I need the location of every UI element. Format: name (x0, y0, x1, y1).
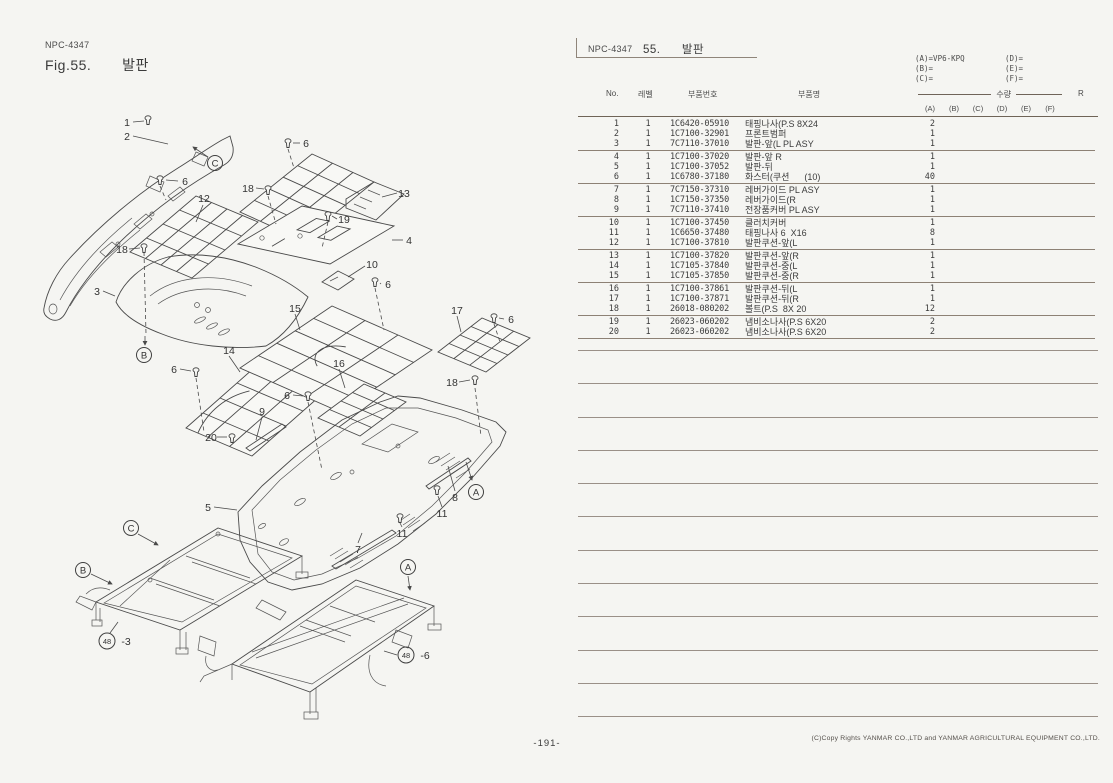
cell-lvl: 1 (639, 195, 657, 205)
table-row: 317C7110-37010발판-앞(L PL ASY1 (575, 139, 1098, 149)
frame-assembly-right (200, 580, 441, 719)
cell-no: 12 (589, 238, 619, 248)
cell-no: 10 (589, 218, 619, 228)
table-row: 1411C7105-37840발판쿠션-중(L1 (575, 261, 1098, 271)
cell-lvl: 1 (639, 185, 657, 195)
qty-subcol-a: (A) (920, 104, 940, 113)
cell-pn: 1C7100-37871 (670, 294, 744, 304)
parts-catalog-page: NPC-4347 Fig.55. 발판 (0, 0, 1113, 783)
cell-lvl: 1 (639, 119, 657, 129)
legend-item-d: (D)= (1005, 54, 1023, 64)
empty-rule-line (578, 683, 1098, 684)
cell-lvl: 1 (639, 327, 657, 337)
table-row: 1111C6650-37480태핑나사 6 X168 (575, 228, 1098, 238)
cell-no: 15 (589, 271, 619, 281)
cell-pn: 7C7150-37310 (670, 185, 744, 195)
cell-lvl: 1 (639, 218, 657, 228)
cell-lvl: 1 (639, 152, 657, 162)
section-number: 55. (643, 44, 661, 56)
cell-no: 5 (589, 162, 619, 172)
cell-qa: 1 (855, 284, 935, 294)
qty-dash-right (1016, 94, 1062, 95)
cell-no: 20 (589, 327, 619, 337)
right-doc-code: NPC-4347 (588, 44, 632, 54)
callout-18: 18 (116, 244, 128, 256)
qty-subcol-c: (C) (968, 104, 988, 113)
empty-rule-line (578, 516, 1098, 517)
empty-rule-line (578, 616, 1098, 617)
cell-qa: 8 (855, 228, 935, 238)
cell-lvl: 1 (639, 228, 657, 238)
table-row: 717C7150-37310레버가이드 PL ASY1 (575, 185, 1098, 195)
callout-12: 12 (198, 193, 210, 205)
table-row: 811C7150-37350레버가이드(R1 (575, 195, 1098, 205)
qty-dash-left (918, 94, 991, 95)
model-legend-col1: (A)=VP6-KPQ (B)= (C)= (915, 54, 965, 84)
ref-48: 48 (402, 651, 410, 660)
empty-rule-line (578, 550, 1098, 551)
cell-no: 13 (589, 251, 619, 261)
cell-no: 14 (589, 261, 619, 271)
callout-6: 6 (171, 364, 177, 376)
cell-pn: 1C7150-37350 (670, 195, 744, 205)
cell-qa: 1 (855, 261, 935, 271)
cell-qa: 1 (855, 185, 935, 195)
qty-subcol-b: (B) (944, 104, 964, 113)
cell-lvl: 1 (639, 317, 657, 327)
table-row: 19126023-060202냄비소나사(P.S 6X202 (575, 317, 1098, 327)
table-row: 18126018-080202볼트(P.S 8X 2012 (575, 304, 1098, 314)
table-row: 917C7110-37410전장품커버 PL ASY1 (575, 205, 1098, 215)
cell-qa: 1 (855, 162, 935, 172)
cell-lvl: 1 (639, 172, 657, 182)
col-header-r: R (1078, 89, 1084, 98)
empty-rule-line (578, 650, 1098, 651)
cell-pn: 26018-080202 (670, 304, 744, 314)
legend-item-e: (E)= (1005, 64, 1023, 74)
header-divider-horizontal (576, 57, 757, 58)
table-row: 20126023-060202냄비소나사(P.S 6X202 (575, 327, 1098, 337)
cell-qa: 2 (855, 317, 935, 327)
cell-lvl: 1 (639, 238, 657, 248)
cell-pn: 1C7100-37861 (670, 284, 744, 294)
cell-no: 3 (589, 139, 619, 149)
callout-14: 14 (223, 345, 235, 357)
exploded-parts-diagram: 1 2 6 18 6 12 19 13 4 10 6 18 3 15 17 6 … (0, 0, 565, 783)
empty-rule-line (578, 583, 1098, 584)
table-row: 1711C7100-37871발판쿠션-뒤(R1 (575, 294, 1098, 304)
footboard-cushion-plate-12 (130, 196, 258, 278)
parts-table: 111C6420-05910태핑나사(P.S 8X242211C7100-329… (575, 119, 1098, 340)
cell-pn: 1C7100-32901 (670, 129, 744, 139)
cell-pn: 1C6780-37180 (670, 172, 744, 182)
callout-7: 7 (355, 544, 361, 556)
empty-rule-line (578, 716, 1098, 717)
view-ref-A: A (405, 563, 412, 574)
cell-pn: 1C7105-37840 (670, 261, 744, 271)
col-header-level: 레벨 (638, 89, 653, 100)
cell-lvl: 1 (639, 294, 657, 304)
cell-pn: 26023-060202 (670, 327, 744, 337)
cell-no: 8 (589, 195, 619, 205)
cell-qa: 12 (855, 304, 935, 314)
qty-label: 수량 (996, 89, 1011, 100)
cell-qa: 1 (855, 129, 935, 139)
cell-qa: 1 (855, 238, 935, 248)
table-header-rule (578, 116, 1098, 117)
page-number: -191- (497, 738, 597, 749)
callout-3: 3 (94, 286, 100, 298)
callout-6: 6 (385, 279, 391, 291)
cell-no: 16 (589, 284, 619, 294)
cell-qa: 1 (855, 195, 935, 205)
callout-8: 8 (452, 492, 458, 504)
footboard-cushion-plate-17 (438, 318, 530, 372)
table-row: 611C6780-37180화스터(쿠션 (10)40 (575, 172, 1098, 182)
cell-pn: 1C7100-37052 (670, 162, 744, 172)
callout-13: 13 (398, 188, 410, 200)
cell-no: 1 (589, 119, 619, 129)
callout-20: 20 (205, 432, 217, 444)
cell-qa: 1 (855, 205, 935, 215)
callout-19: 19 (338, 214, 350, 226)
cell-no: 17 (589, 294, 619, 304)
table-row: 1511C7105-37850발판쿠션-중(R1 (575, 271, 1098, 281)
col-header-qty: 수량 (918, 89, 1062, 100)
cell-no: 19 (589, 317, 619, 327)
empty-rule-line (578, 417, 1098, 418)
callout-11: 11 (437, 508, 448, 520)
cell-lvl: 1 (639, 162, 657, 172)
cell-pn: 1C6420-05910 (670, 119, 744, 129)
ref-48-suffix-3: -3 (121, 636, 130, 648)
view-ref-B: B (80, 566, 86, 577)
cell-qa: 1 (855, 251, 935, 261)
cell-lvl: 1 (639, 261, 657, 271)
cell-no: 2 (589, 129, 619, 139)
cell-pn: 1C7100-37820 (670, 251, 744, 261)
empty-rule-line (578, 350, 1098, 351)
view-ref-C: C (128, 524, 135, 535)
copyright-notice: (C)Copy Rights YANMAR CO.,LTD and YANMAR… (700, 735, 1100, 742)
model-legend-col2: (D)= (E)= (F)= (1005, 54, 1023, 84)
cell-qa: 1 (855, 139, 935, 149)
cell-lvl: 1 (639, 129, 657, 139)
table-row: 1611C7100-37861발판쿠션-뒤(L1 (575, 284, 1098, 294)
cell-no: 11 (589, 228, 619, 238)
ref-48-suffix-6: -6 (420, 650, 429, 662)
callout-15: 15 (289, 303, 301, 315)
table-row: 511C7100-37052발판-뒤1 (575, 162, 1098, 172)
cell-pn: 1C6650-37480 (670, 228, 744, 238)
cell-pn: 7C7110-37410 (670, 205, 744, 215)
small-plate-10 (322, 271, 354, 290)
empty-rule-line (578, 383, 1098, 384)
header-divider-vertical (576, 38, 577, 57)
legend-item-b: (B)= (915, 64, 965, 74)
cell-qa: 2 (855, 327, 935, 337)
empty-ruled-area (578, 350, 1098, 750)
qty-subcol-d: (D) (992, 104, 1012, 113)
ref-48: 48 (103, 637, 111, 646)
col-header-part-name: 부품명 (798, 89, 820, 100)
callout-1: 1 (124, 117, 130, 129)
cell-qa: 1 (855, 271, 935, 281)
legend-item-f: (F)= (1005, 74, 1023, 84)
callout-18: 18 (242, 183, 254, 195)
cell-lvl: 1 (639, 271, 657, 281)
callout-6: 6 (284, 390, 290, 402)
col-header-no: No. (606, 89, 618, 98)
cell-lvl: 1 (639, 304, 657, 314)
qty-subcol-f: (F) (1040, 104, 1060, 113)
qty-subcol-e: (E) (1016, 104, 1036, 113)
cell-pn: 1C7100-37020 (670, 152, 744, 162)
cell-pn: 7C7110-37010 (670, 139, 744, 149)
callout-2: 2 (124, 131, 130, 143)
cell-pn: 1C7100-37450 (670, 218, 744, 228)
legend-item-a: (A)=VP6-KPQ (915, 54, 965, 64)
callout-4: 4 (406, 235, 412, 247)
section-title: 55. 발판 (643, 41, 704, 57)
view-ref-A: A (473, 488, 480, 499)
cell-no: 7 (589, 185, 619, 195)
col-header-part-no: 부품번호 (688, 89, 717, 100)
group-separator (575, 337, 1098, 340)
callout-10: 10 (366, 259, 378, 271)
table-row: 1211C7100-37810발판쿠션-앞(L1 (575, 238, 1098, 248)
callout-16: 16 (333, 358, 345, 370)
callout-6: 6 (182, 176, 188, 188)
cell-pn: 1C7100-37810 (670, 238, 744, 248)
view-ref-B: B (141, 351, 147, 362)
view-ref-C: C (212, 159, 219, 170)
cell-qa: 2 (855, 119, 935, 129)
table-row: 1311C7100-37820발판쿠션-앞(R1 (575, 251, 1098, 261)
table-row: 211C7100-32901프론트범퍼1 (575, 129, 1098, 139)
callout-6: 6 (508, 314, 514, 326)
cell-qa: 1 (855, 152, 935, 162)
cell-lvl: 1 (639, 205, 657, 215)
empty-rule-line (578, 450, 1098, 451)
callout-6: 6 (303, 138, 309, 150)
cell-qa: 40 (855, 172, 935, 182)
cell-qa: 1 (855, 218, 935, 228)
cell-no: 18 (589, 304, 619, 314)
table-row: 411C7100-37020발판-앞 R1 (575, 152, 1098, 162)
cell-lvl: 1 (639, 284, 657, 294)
cell-no: 4 (589, 152, 619, 162)
callout-17: 17 (451, 305, 463, 317)
section-name: 발판 (682, 44, 704, 56)
table-row: 1011C7100-37450클러치커버1 (575, 218, 1098, 228)
callout-11: 11 (397, 528, 408, 540)
cell-no: 6 (589, 172, 619, 182)
callout-5: 5 (205, 502, 211, 514)
table-row: 111C6420-05910태핑나사(P.S 8X242 (575, 119, 1098, 129)
cell-no: 9 (589, 205, 619, 215)
cell-pn: 26023-060202 (670, 317, 744, 327)
empty-rule-line (578, 483, 1098, 484)
frame-assembly-left (76, 528, 308, 670)
callout-18: 18 (446, 377, 458, 389)
cell-lvl: 1 (639, 139, 657, 149)
cell-qa: 1 (855, 294, 935, 304)
strip-7 (332, 530, 396, 569)
cell-pn: 1C7105-37850 (670, 271, 744, 281)
cell-lvl: 1 (639, 251, 657, 261)
callout-9: 9 (259, 406, 265, 418)
legend-item-c: (C)= (915, 74, 965, 84)
